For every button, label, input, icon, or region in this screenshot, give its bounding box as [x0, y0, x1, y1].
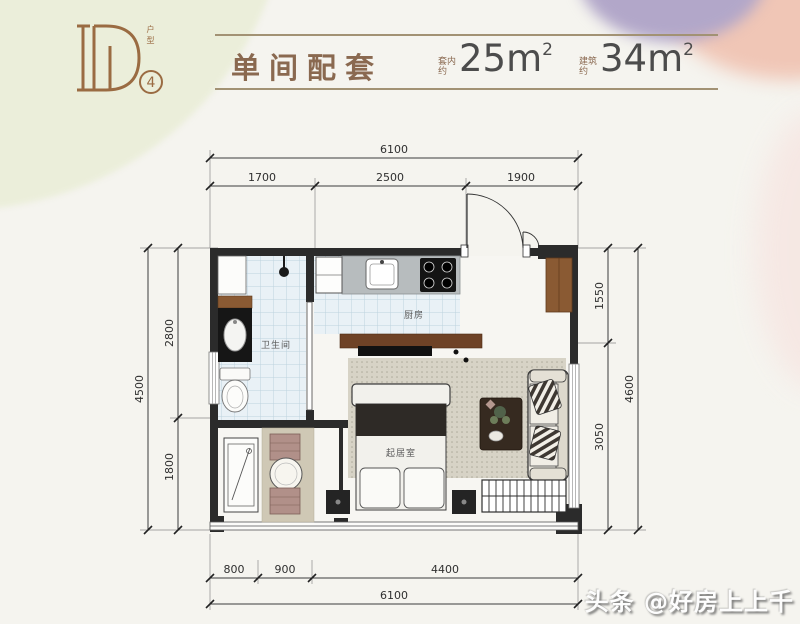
logo-d-bowl	[94, 26, 139, 90]
bathroom-shelf	[218, 296, 252, 308]
dim-left-seg-2: 1800	[163, 453, 176, 481]
dim-left-seg-1: 2800	[163, 319, 176, 347]
tv	[358, 346, 432, 356]
dim-bottom-total: 6100	[380, 589, 408, 602]
page-title: 单间配套	[231, 45, 383, 87]
dim-top-seg-3: 1900	[507, 171, 535, 184]
kitchen-faucet	[380, 260, 384, 264]
window-left	[209, 352, 219, 404]
dim-right-seg-1: 1550	[593, 282, 606, 310]
dim-top-total: 6100	[380, 143, 408, 156]
dim-top-seg-1: 1700	[248, 171, 276, 184]
gross-area: 建筑 约 34m2	[579, 40, 694, 78]
toilet-tank	[220, 368, 250, 380]
inner-area-unit: m	[506, 40, 542, 77]
logo-bar-2	[88, 26, 101, 90]
stool-top	[270, 434, 300, 460]
burner-3	[424, 278, 434, 288]
watermark: 头条 @好房上上千	[585, 582, 794, 617]
dim-bottom-seg-3: 4400	[431, 563, 459, 576]
stool-bottom	[270, 488, 300, 514]
plant-leaf-2	[490, 416, 498, 424]
inner-area-value: 25	[459, 40, 506, 77]
dim-bottom-seg-2: 900	[275, 563, 296, 576]
gross-area-label-bottom: 约	[579, 67, 597, 77]
wall-bathroom-partition-upper	[306, 256, 314, 302]
logo-d-monogram: 4	[75, 22, 175, 118]
vanity-faucet	[233, 320, 237, 324]
balcony	[224, 428, 314, 522]
tv-console	[340, 334, 482, 348]
hall-dot-2	[464, 358, 469, 363]
inner-area-sup: 2	[542, 42, 553, 59]
burner-1	[424, 262, 434, 272]
area-figures: 套内 约 25m2 建筑 约 34m2	[438, 40, 694, 78]
gross-area-sup: 2	[683, 42, 694, 59]
shower-cabinet	[218, 256, 246, 294]
inner-area: 套内 约 25m2	[438, 40, 553, 78]
inner-area-label-top: 套内	[438, 57, 456, 67]
logo-vertical-label: 户型	[146, 25, 154, 47]
room-label-bathroom: 卫生间	[261, 339, 291, 351]
radiator-grid	[482, 480, 566, 512]
shower-head-icon	[279, 267, 289, 277]
entry-door	[461, 194, 539, 257]
inner-area-label-bottom: 约	[438, 67, 456, 77]
room-label-living: 起居室	[386, 447, 416, 459]
dim-right-total: 4600	[623, 375, 636, 403]
bathroom-sliding-door	[307, 302, 312, 410]
bed-cushion-left	[360, 468, 400, 508]
burner-2	[442, 262, 452, 272]
dim-left-total: 4500	[133, 375, 146, 403]
dim-top-seg-2: 2500	[376, 171, 404, 184]
wall-top-left	[210, 248, 462, 256]
burner-4	[442, 278, 452, 288]
wall-left-upper	[210, 248, 218, 352]
sofa-arm-bottom	[530, 468, 566, 480]
logo-bar-1	[77, 26, 90, 90]
door-frame-right	[523, 245, 530, 257]
bed-headboard	[352, 384, 450, 406]
title-rule-bottom	[215, 88, 718, 90]
toilet-bowl	[222, 380, 248, 412]
door-swing-arc	[467, 194, 523, 248]
logo-number: 4	[147, 75, 156, 91]
window-right	[569, 364, 579, 508]
table-dish	[489, 431, 503, 441]
gross-area-unit: m	[647, 40, 683, 77]
gross-area-label-top: 建筑	[579, 57, 597, 67]
floorplan-page: 4 户型 单间配套 套内 约 25m2 建筑 约 34m2	[0, 0, 800, 624]
bed-cushion-right	[404, 468, 444, 508]
gross-area-label: 建筑 约	[579, 57, 597, 78]
wall-living-partition-stub	[339, 428, 343, 490]
inner-area-label: 套内 约	[438, 57, 456, 78]
room-label-kitchen: 厨房	[404, 309, 424, 321]
nightstand-right-knob	[462, 500, 467, 505]
dim-right-seg-2: 3050	[593, 423, 606, 451]
nightstand-left-knob	[336, 500, 341, 505]
bed-blanket	[356, 404, 446, 436]
coffee-table	[480, 398, 522, 450]
title-rule-top	[215, 34, 718, 36]
plant-leaf-3	[502, 416, 510, 424]
wall-balcony-partition	[210, 420, 348, 428]
gross-area-value: 34	[600, 40, 647, 77]
dim-bottom-seg-1: 800	[224, 563, 245, 576]
plant-leaf-1	[494, 406, 506, 418]
hall-dot-1	[454, 350, 459, 355]
